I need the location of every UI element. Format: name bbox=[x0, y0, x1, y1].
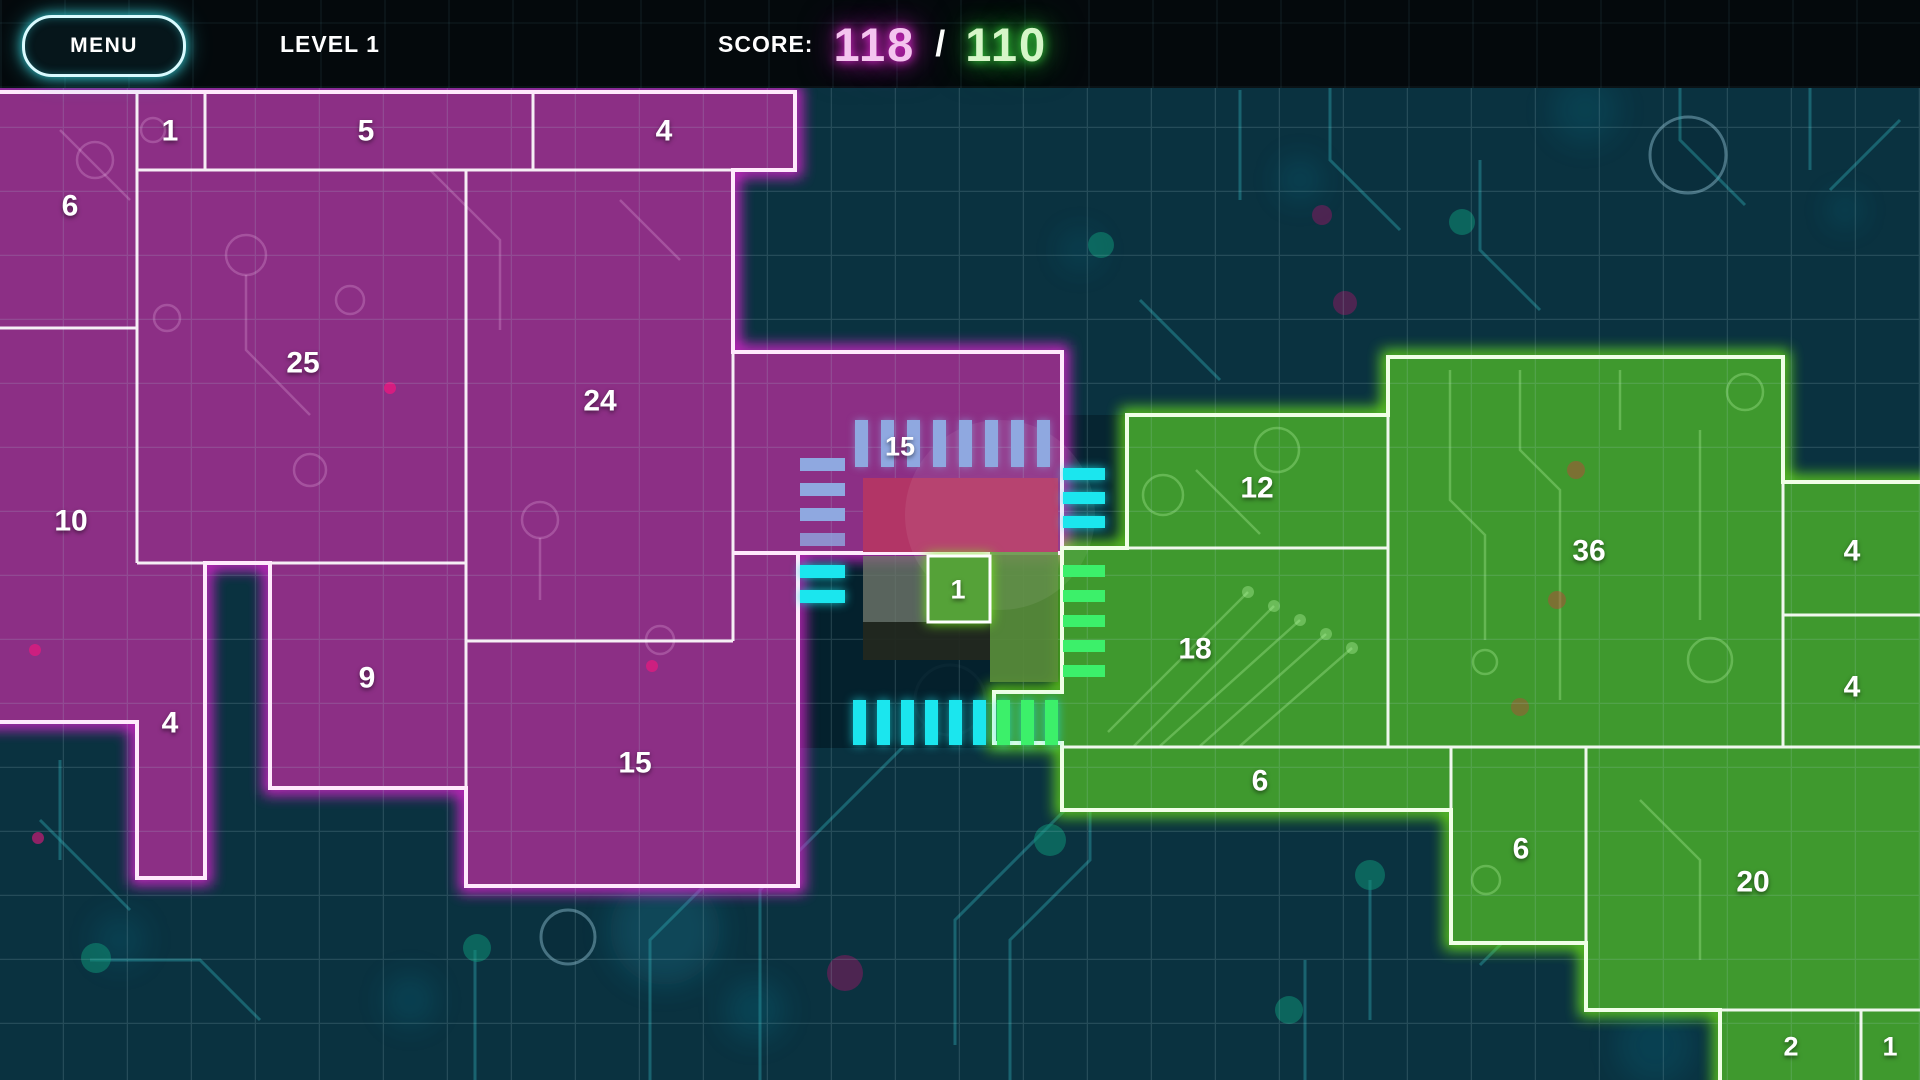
chip-cell-neutral[interactable] bbox=[863, 556, 928, 622]
region-label: 12 bbox=[1240, 472, 1273, 505]
region-label: 36 bbox=[1572, 535, 1605, 568]
region-label: 24 bbox=[583, 385, 617, 418]
region-label: 15 bbox=[885, 431, 915, 461]
region-label: 15 bbox=[618, 747, 651, 780]
game-board: 6 1 5 4 25 24 10 4 9 15 15 12 36 4 4 18 … bbox=[0, 0, 1920, 1080]
level-indicator: LEVEL 1 bbox=[280, 0, 380, 88]
menu-button[interactable]: MENU bbox=[22, 15, 186, 77]
menu-button-label: MENU bbox=[70, 34, 138, 58]
score-display: SCORE: 118 / 110 bbox=[718, 0, 1047, 88]
region-label: 4 bbox=[1844, 535, 1861, 568]
chip-cell-dark[interactable] bbox=[863, 622, 990, 660]
region-label: 6 bbox=[62, 190, 79, 223]
chip-cell-label: 1 bbox=[950, 574, 965, 604]
region-label: 1 bbox=[162, 115, 179, 148]
region-label: 4 bbox=[162, 707, 179, 740]
region-label: 18 bbox=[1178, 633, 1211, 666]
score-label: SCORE: bbox=[718, 31, 813, 58]
region-label: 5 bbox=[358, 115, 375, 148]
region-label: 4 bbox=[1844, 671, 1861, 704]
chip-pins-bottom bbox=[853, 700, 1058, 745]
top-bar: MENU LEVEL 1 SCORE: 118 / 110 bbox=[0, 0, 1920, 88]
region-label: 20 bbox=[1736, 866, 1769, 899]
game-stage: 6 1 5 4 25 24 10 4 9 15 15 12 36 4 4 18 … bbox=[0, 0, 1920, 1080]
region-label: 2 bbox=[1783, 1031, 1798, 1061]
region-label: 10 bbox=[54, 505, 87, 538]
score-current: 118 bbox=[833, 17, 915, 72]
region-label: 6 bbox=[1252, 765, 1269, 798]
region-label: 25 bbox=[286, 347, 319, 380]
chip-pins-right bbox=[1063, 468, 1105, 677]
score-divider: / bbox=[935, 23, 945, 65]
score-target: 110 bbox=[965, 17, 1047, 72]
region-label: 1 bbox=[1882, 1031, 1897, 1061]
region-label: 4 bbox=[656, 115, 673, 148]
region-label: 9 bbox=[359, 662, 376, 695]
region-label: 6 bbox=[1513, 833, 1530, 866]
